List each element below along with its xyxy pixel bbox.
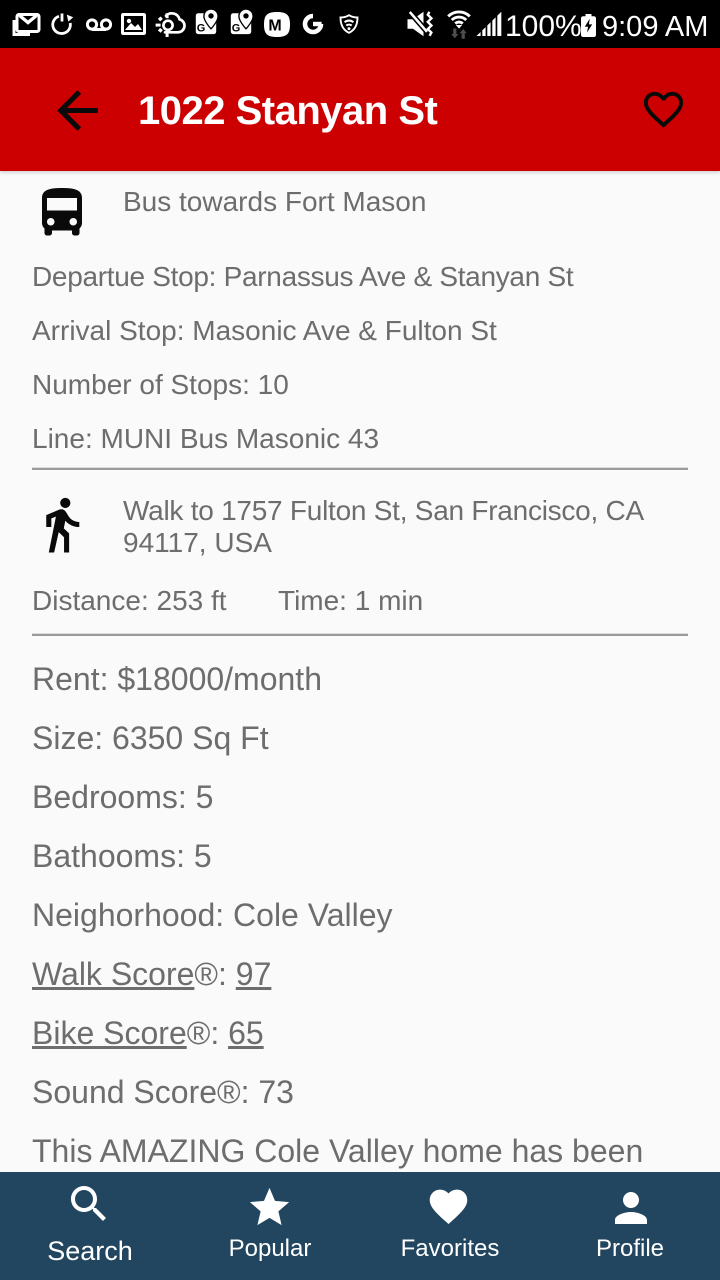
svg-text:M: M (268, 18, 281, 35)
svg-text:G: G (231, 23, 240, 35)
svg-text:G: G (197, 23, 206, 35)
